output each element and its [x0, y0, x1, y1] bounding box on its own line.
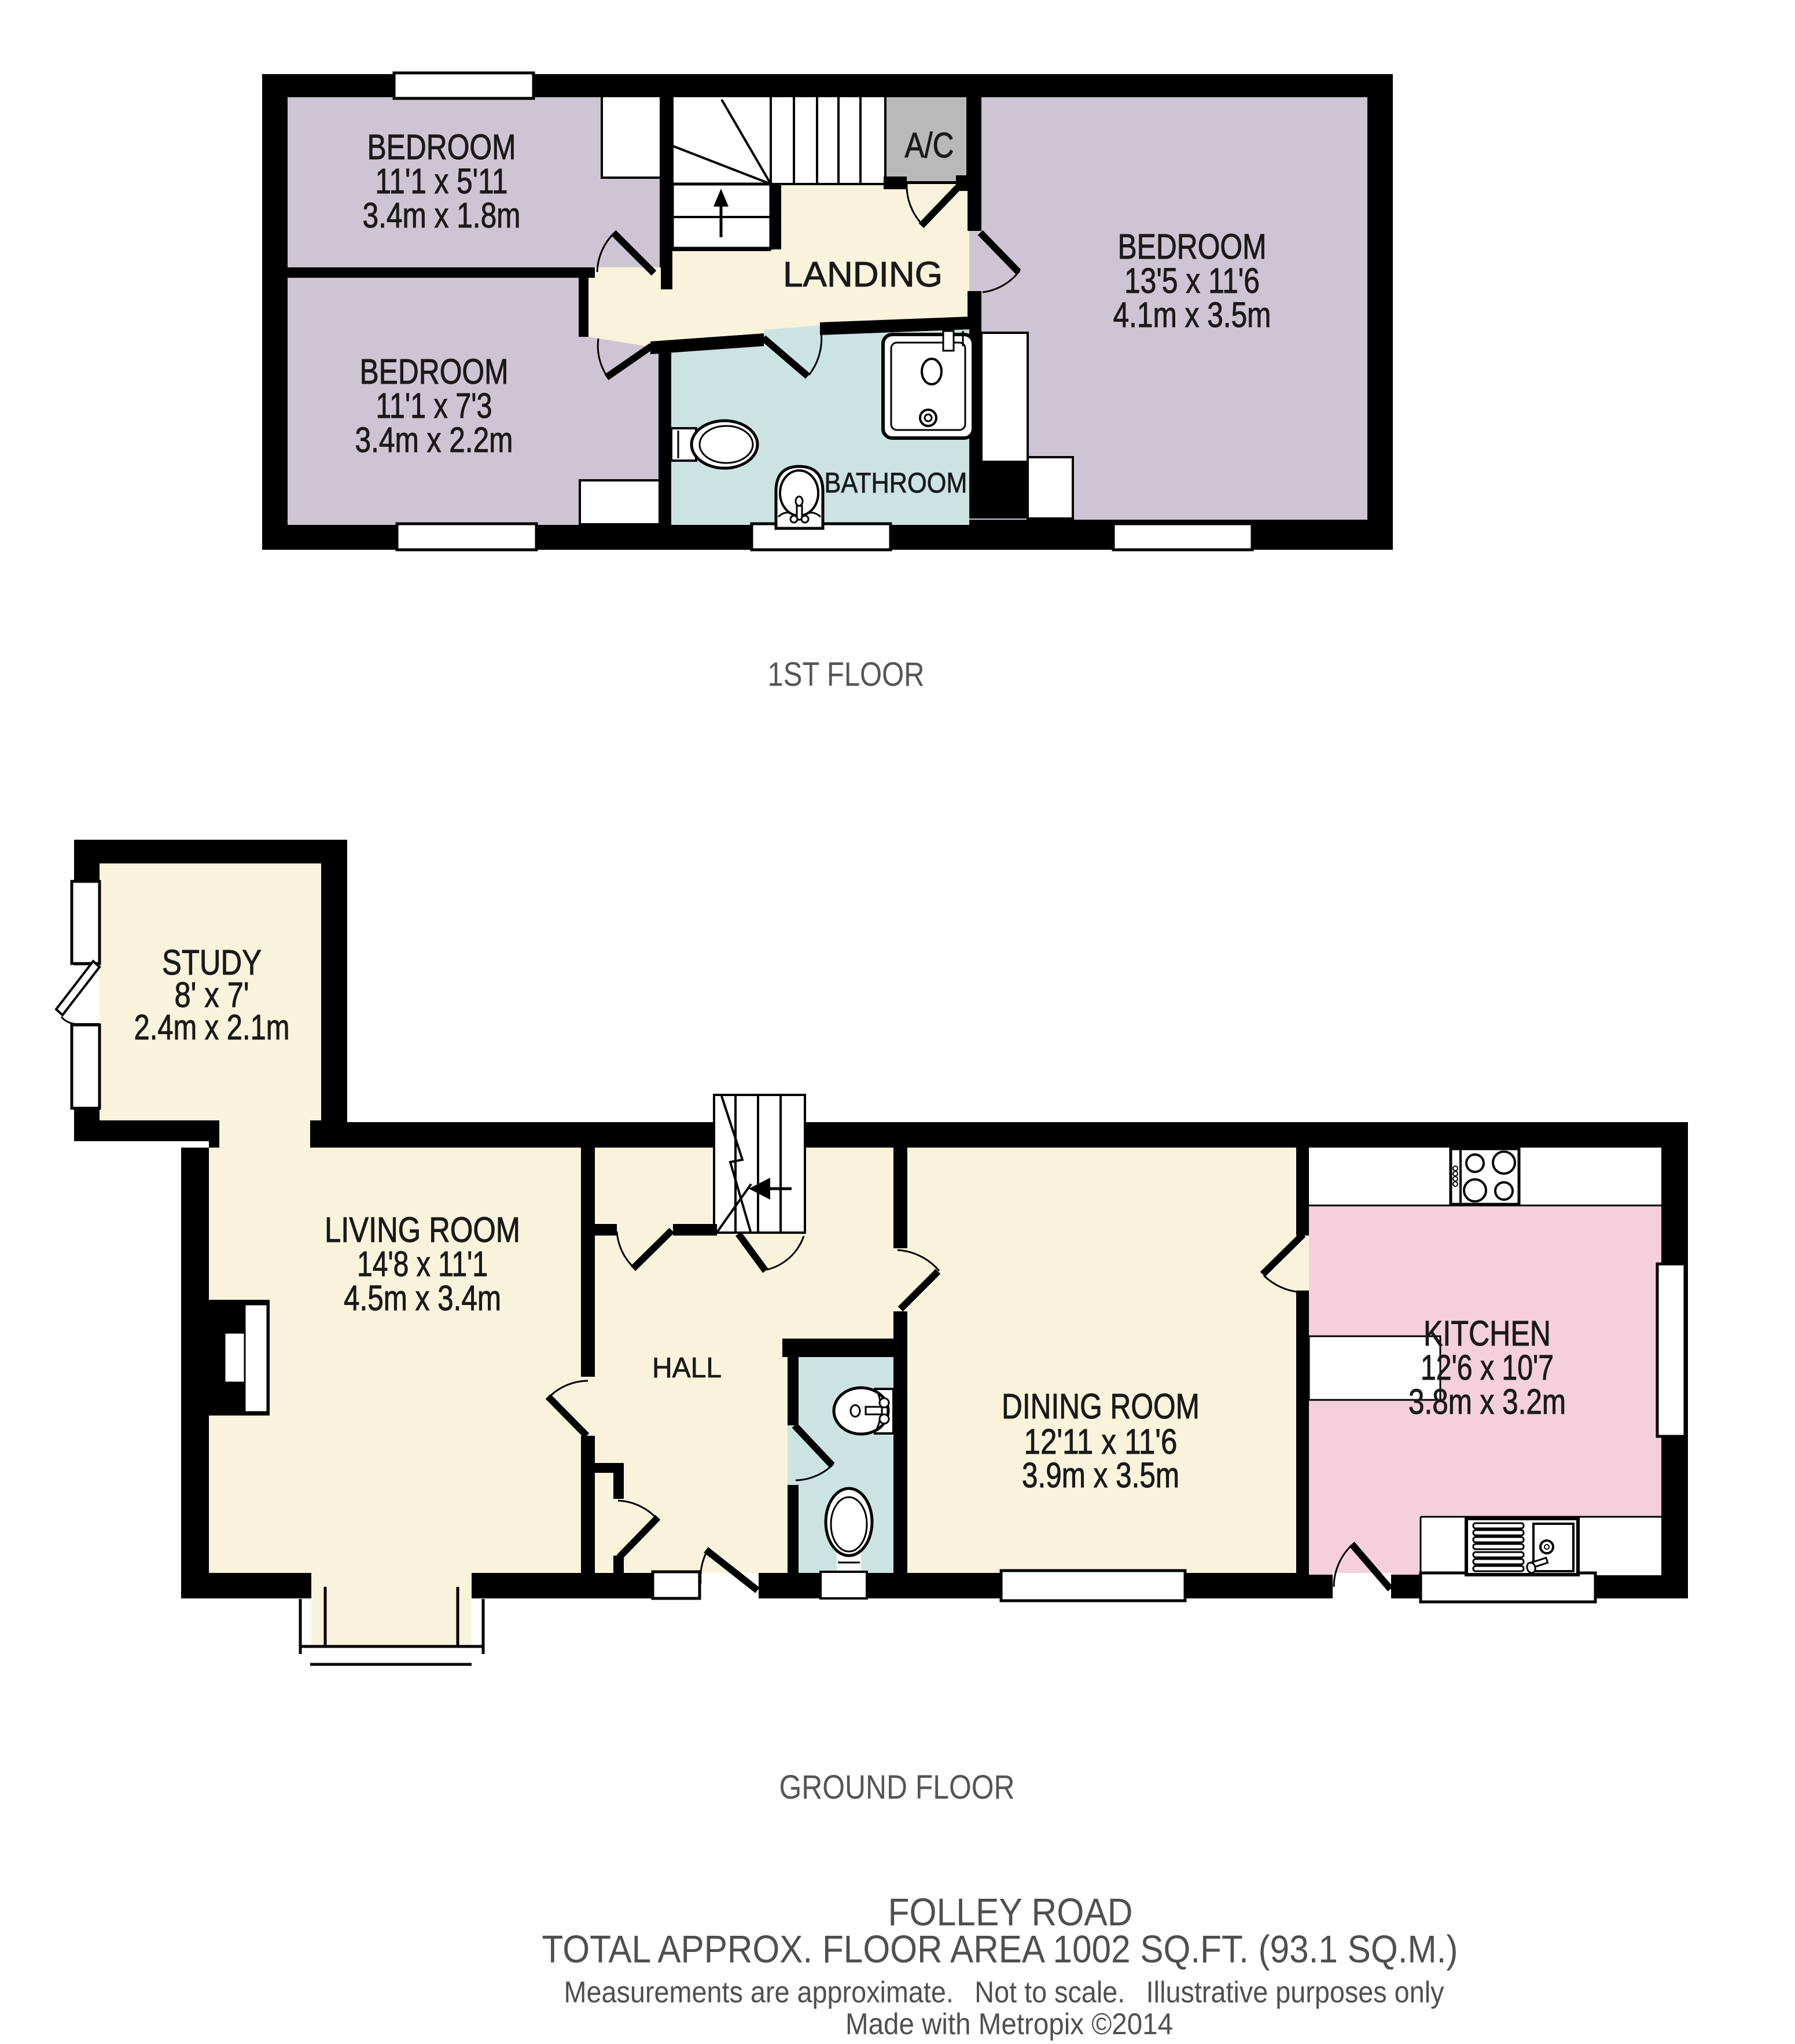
svg-text:1ST FLOOR: 1ST FLOOR — [768, 656, 925, 693]
svg-text:14'8 x 11'1: 14'8 x 11'1 — [357, 1244, 488, 1284]
svg-text:LANDING: LANDING — [783, 255, 943, 294]
svg-text:4.1m x 3.5m: 4.1m x 3.5m — [1113, 295, 1271, 334]
svg-text:3.9m x 3.5m: 3.9m x 3.5m — [1022, 1455, 1179, 1495]
svg-text:11'1 x 5'11: 11'1 x 5'11 — [376, 161, 508, 201]
svg-text:3.4m x 2.2m: 3.4m x 2.2m — [355, 420, 513, 459]
svg-text:13'5 x 11'6: 13'5 x 11'6 — [1124, 261, 1260, 300]
svg-text:KITCHEN: KITCHEN — [1424, 1314, 1551, 1353]
svg-text:BEDROOM: BEDROOM — [367, 127, 516, 167]
svg-text:A/C: A/C — [905, 126, 954, 165]
svg-text:3.4m x 1.8m: 3.4m x 1.8m — [363, 196, 521, 235]
svg-text:BATHROOM: BATHROOM — [825, 468, 968, 499]
svg-text:4.5m x 3.4m: 4.5m x 3.4m — [344, 1278, 501, 1318]
svg-text:Measurements are approximate.: Measurements are approximate. Not to sca… — [564, 1976, 1444, 2009]
svg-text:11'1 x 7'3: 11'1 x 7'3 — [376, 386, 492, 425]
svg-text:TOTAL APPROX. FLOOR AREA 1002: TOTAL APPROX. FLOOR AREA 1002 SQ.FT. (93… — [542, 1928, 1458, 1971]
svg-text:DINING ROOM: DINING ROOM — [1002, 1387, 1200, 1426]
svg-text:HALL: HALL — [652, 1352, 722, 1384]
svg-text:2.4m x 2.1m: 2.4m x 2.1m — [134, 1008, 290, 1047]
svg-text:3.8m x 3.2m: 3.8m x 3.2m — [1408, 1382, 1566, 1421]
svg-text:LIVING ROOM: LIVING ROOM — [325, 1210, 520, 1249]
svg-text:GROUND FLOOR: GROUND FLOOR — [779, 1769, 1015, 1806]
svg-text:Made with Metropix ©2014: Made with Metropix ©2014 — [845, 2008, 1173, 2041]
svg-text:BEDROOM: BEDROOM — [360, 352, 509, 391]
svg-text:12'6 x 10'7: 12'6 x 10'7 — [1421, 1348, 1554, 1387]
svg-text:BEDROOM: BEDROOM — [1118, 227, 1267, 266]
